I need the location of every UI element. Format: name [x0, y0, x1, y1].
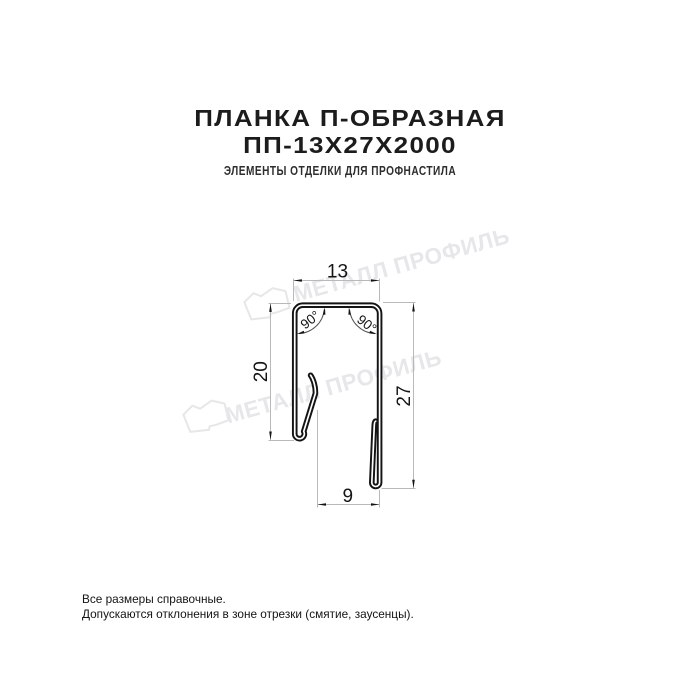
svg-text:13: 13 — [327, 261, 348, 282]
svg-text:МЕТАЛЛ ПРОФИЛЬ: МЕТАЛЛ ПРОФИЛЬ — [291, 223, 513, 307]
svg-text:90°: 90° — [354, 312, 379, 336]
svg-text:27: 27 — [394, 385, 415, 406]
svg-text:20: 20 — [251, 361, 272, 382]
svg-text:9: 9 — [343, 486, 354, 507]
svg-text:90°: 90° — [298, 308, 323, 332]
